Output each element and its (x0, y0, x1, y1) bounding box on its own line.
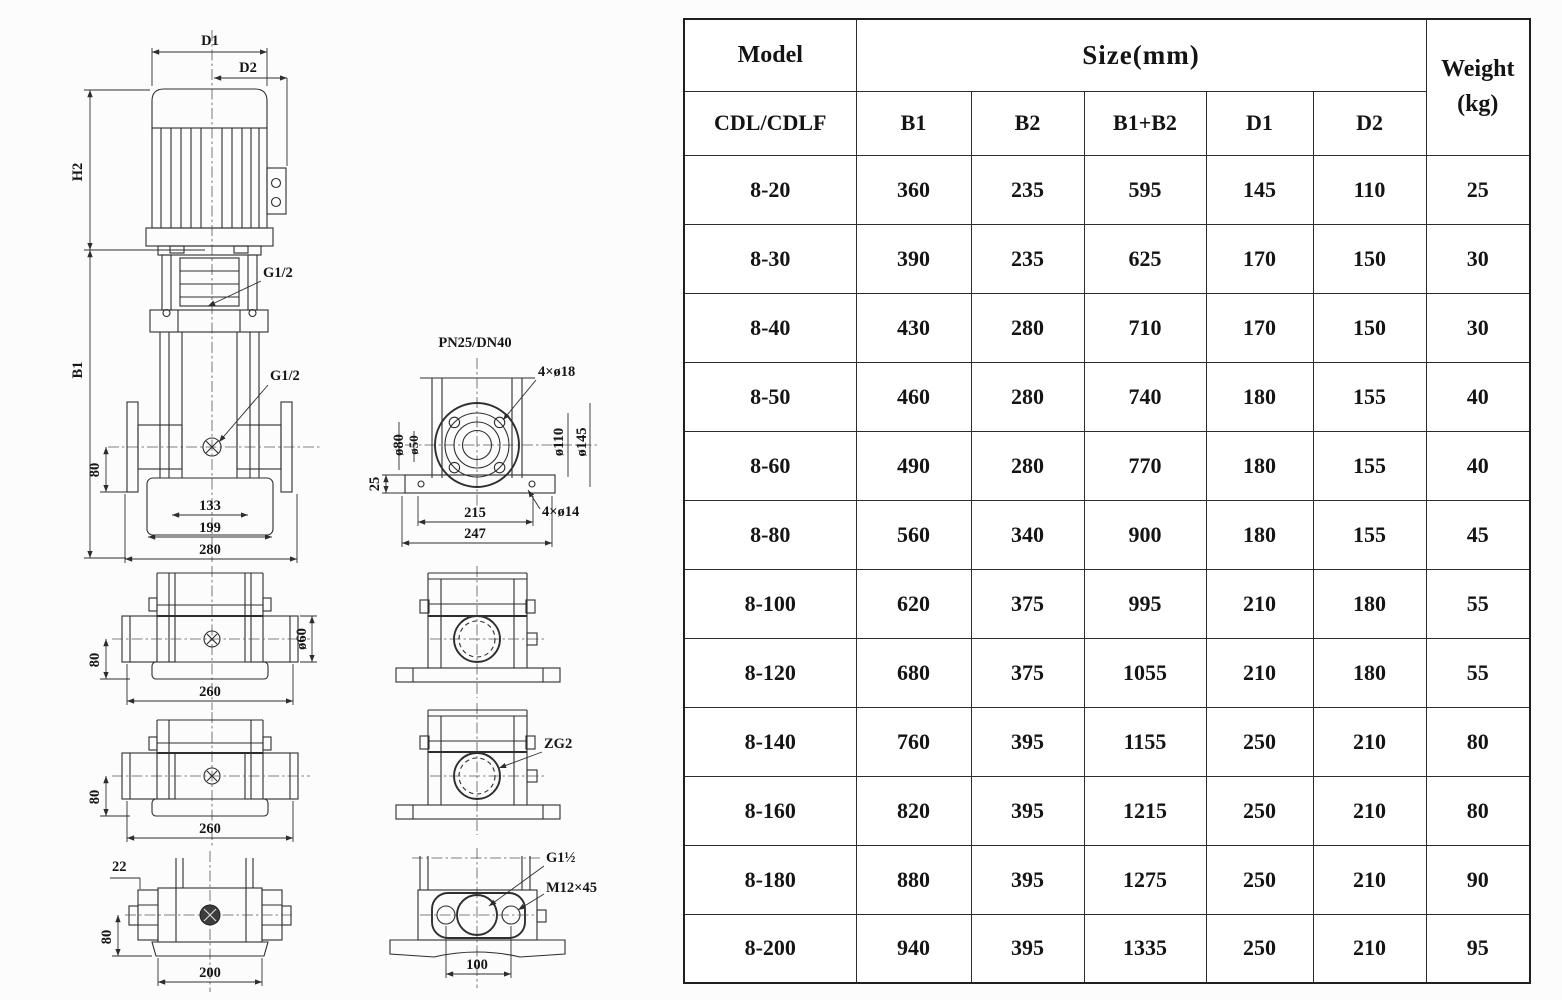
model-cell: 8-140 (684, 707, 856, 776)
dim-h2-label: H2 (70, 163, 86, 182)
value-cell: 280 (971, 362, 1084, 431)
value-cell: 375 (971, 638, 1084, 707)
value-cell: 460 (856, 362, 971, 431)
value-cell: 250 (1206, 776, 1313, 845)
table-row: 8-60 490 280 770 180 155 40 (684, 431, 1530, 500)
oval-thread-label: G1½ (546, 850, 576, 866)
value-cell: 1275 (1084, 845, 1206, 914)
value-cell: 155 (1313, 500, 1426, 569)
value-cell: 395 (971, 845, 1084, 914)
flange-view: PN25/DN40 4×ø18 ø80 ø50 ø110 (367, 335, 600, 547)
value-cell: 80 (1426, 776, 1530, 845)
value-cell: 80 (1426, 707, 1530, 776)
header-col-d1: D1 (1206, 91, 1313, 155)
value-cell: 30 (1426, 224, 1530, 293)
value-cell: 430 (856, 293, 971, 362)
model-cell: 8-60 (684, 431, 856, 500)
value-cell: 55 (1426, 569, 1530, 638)
header-col-b2: B2 (971, 91, 1084, 155)
value-cell: 170 (1206, 293, 1313, 362)
pipe-mid-dim80-label: 80 (87, 790, 103, 805)
pipe-top-dia60-label: ø60 (294, 628, 310, 650)
model-cell: 8-30 (684, 224, 856, 293)
value-cell: 180 (1313, 638, 1426, 707)
dim-d2-label: D2 (239, 60, 257, 76)
value-cell: 25 (1426, 155, 1530, 224)
model-cell: 8-20 (684, 155, 856, 224)
value-cell: 595 (1084, 155, 1206, 224)
value-cell: 280 (971, 431, 1084, 500)
value-cell: 625 (1084, 224, 1206, 293)
value-cell: 360 (856, 155, 971, 224)
value-cell: 170 (1206, 224, 1313, 293)
value-cell: 340 (971, 500, 1084, 569)
value-cell: 880 (856, 845, 971, 914)
dim-199-label: 199 (199, 520, 221, 536)
pipe-top-dim260-label: 260 (199, 684, 221, 700)
value-cell: 390 (856, 224, 971, 293)
value-cell: 395 (971, 707, 1084, 776)
table-header-row-2: CDL/CDLF B1 B2 B1+B2 D1 D2 (684, 91, 1530, 155)
header-model: Model (684, 19, 856, 91)
table-row: 8-140 760 395 1155 250 210 80 (684, 707, 1530, 776)
dim-d1-label: D1 (201, 33, 219, 49)
pipe-top-dim80-label: 80 (87, 653, 103, 668)
value-cell: 90 (1426, 845, 1530, 914)
port-label-g12-side: G1/2 (270, 368, 300, 384)
pump-spec-sheet: D1 D2 (0, 0, 1562, 1000)
model-cell: 8-160 (684, 776, 856, 845)
table-header-row-1: Model Size(mm) Weight (kg) (684, 19, 1530, 91)
value-cell: 1055 (1084, 638, 1206, 707)
header-col-d2: D2 (1313, 91, 1426, 155)
oval-bolt-label: M12×45 (546, 880, 597, 896)
flange-bolt-holes-label: 4×ø18 (538, 364, 575, 380)
port-label-g12-top: G1/2 (263, 265, 293, 281)
port-zg2-label: ZG2 (544, 736, 572, 752)
header-weight-line2: (kg) (1427, 87, 1530, 122)
header-size: Size(mm) (856, 19, 1426, 91)
front-view: D1 D2 (70, 30, 320, 563)
model-cell: 8-120 (684, 638, 856, 707)
flange-base-holes-label: 4×ø14 (542, 504, 579, 520)
header-col-b1: B1 (856, 91, 971, 155)
port-view-zg2: ZG2 (396, 703, 572, 835)
pipe-view-top: 80 260 ø60 (87, 566, 317, 710)
value-cell: 210 (1313, 707, 1426, 776)
value-cell: 180 (1206, 362, 1313, 431)
flange-dim215-label: 215 (464, 505, 486, 521)
value-cell: 280 (971, 293, 1084, 362)
flange-dia80-label: ø80 (391, 434, 407, 456)
value-cell: 250 (1206, 845, 1313, 914)
value-cell: 560 (856, 500, 971, 569)
dim-280-label: 280 (199, 542, 221, 558)
table-row: 8-20 360 235 595 145 110 25 (684, 155, 1530, 224)
value-cell: 770 (1084, 431, 1206, 500)
table-row: 8-40 430 280 710 170 150 30 (684, 293, 1530, 362)
model-cell: 8-180 (684, 845, 856, 914)
value-cell: 620 (856, 569, 971, 638)
value-cell: 40 (1426, 431, 1530, 500)
flange-dim25-label: 25 (367, 477, 383, 492)
oval-dim100-label: 100 (466, 957, 488, 973)
value-cell: 395 (971, 776, 1084, 845)
value-cell: 145 (1206, 155, 1313, 224)
dim-133-label: 133 (199, 498, 221, 514)
value-cell: 250 (1206, 707, 1313, 776)
value-cell: 395 (971, 914, 1084, 983)
value-cell: 490 (856, 431, 971, 500)
value-cell: 180 (1313, 569, 1426, 638)
thread-view: 22 80 200 (99, 851, 295, 992)
flange-dia145-label: ø145 (574, 428, 590, 457)
model-cell: 8-200 (684, 914, 856, 983)
value-cell: 45 (1426, 500, 1530, 569)
table-row: 8-200 940 395 1335 250 210 95 (684, 914, 1530, 983)
value-cell: 1335 (1084, 914, 1206, 983)
flange-dia110-label: ø110 (551, 428, 567, 456)
dimension-table: Model Size(mm) Weight (kg) CDL/CDLF B1 B… (683, 18, 1529, 984)
table-row: 8-50 460 280 740 180 155 40 (684, 362, 1530, 431)
value-cell: 760 (856, 707, 971, 776)
pipe-view-mid: 80 260 (87, 712, 310, 848)
value-cell: 210 (1206, 569, 1313, 638)
value-cell: 180 (1206, 431, 1313, 500)
header-weight: Weight (kg) (1426, 19, 1530, 155)
value-cell: 95 (1426, 914, 1530, 983)
value-cell: 250 (1206, 914, 1313, 983)
thread-dim22-label: 22 (112, 859, 127, 875)
value-cell: 235 (971, 224, 1084, 293)
header-col-b1b2: B1+B2 (1084, 91, 1206, 155)
model-cell: 8-100 (684, 569, 856, 638)
port-view-plain (396, 566, 560, 698)
value-cell: 155 (1313, 431, 1426, 500)
pipe-mid-dim260-label: 260 (199, 821, 221, 837)
thread-dim200-label: 200 (199, 965, 221, 981)
table-row: 8-120 680 375 1055 210 180 55 (684, 638, 1530, 707)
value-cell: 210 (1313, 845, 1426, 914)
model-cell: 8-40 (684, 293, 856, 362)
value-cell: 940 (856, 914, 971, 983)
value-cell: 150 (1313, 293, 1426, 362)
pump-technical-drawing: D1 D2 (0, 0, 683, 1000)
value-cell: 210 (1206, 638, 1313, 707)
value-cell: 40 (1426, 362, 1530, 431)
table-row: 8-100 620 375 995 210 180 55 (684, 569, 1530, 638)
value-cell: 150 (1313, 224, 1426, 293)
header-model-sub: CDL/CDLF (684, 91, 856, 155)
value-cell: 375 (971, 569, 1084, 638)
model-cell: 8-80 (684, 500, 856, 569)
value-cell: 210 (1313, 776, 1426, 845)
value-cell: 740 (1084, 362, 1206, 431)
table-row: 8-160 820 395 1215 250 210 80 (684, 776, 1530, 845)
value-cell: 1215 (1084, 776, 1206, 845)
oval-flange-view: 100 G1½ M12×45 (390, 848, 597, 988)
value-cell: 110 (1313, 155, 1426, 224)
value-cell: 995 (1084, 569, 1206, 638)
value-cell: 900 (1084, 500, 1206, 569)
model-cell: 8-50 (684, 362, 856, 431)
value-cell: 155 (1313, 362, 1426, 431)
value-cell: 180 (1206, 500, 1313, 569)
flange-dim247-label: 247 (464, 526, 486, 542)
value-cell: 30 (1426, 293, 1530, 362)
thread-dim80-label: 80 (99, 930, 115, 945)
header-weight-line1: Weight (1427, 52, 1530, 87)
value-cell: 1155 (1084, 707, 1206, 776)
value-cell: 820 (856, 776, 971, 845)
table-row: 8-80 560 340 900 180 155 45 (684, 500, 1530, 569)
value-cell: 710 (1084, 293, 1206, 362)
dim-80-label: 80 (87, 463, 103, 478)
flange-title: PN25/DN40 (438, 335, 511, 351)
value-cell: 680 (856, 638, 971, 707)
value-cell: 210 (1313, 914, 1426, 983)
flange-dia50-label: ø50 (406, 435, 421, 455)
value-cell: 235 (971, 155, 1084, 224)
table-row: 8-30 390 235 625 170 150 30 (684, 224, 1530, 293)
value-cell: 55 (1426, 638, 1530, 707)
table-row: 8-180 880 395 1275 250 210 90 (684, 845, 1530, 914)
dim-b1-label: B1 (70, 362, 86, 379)
